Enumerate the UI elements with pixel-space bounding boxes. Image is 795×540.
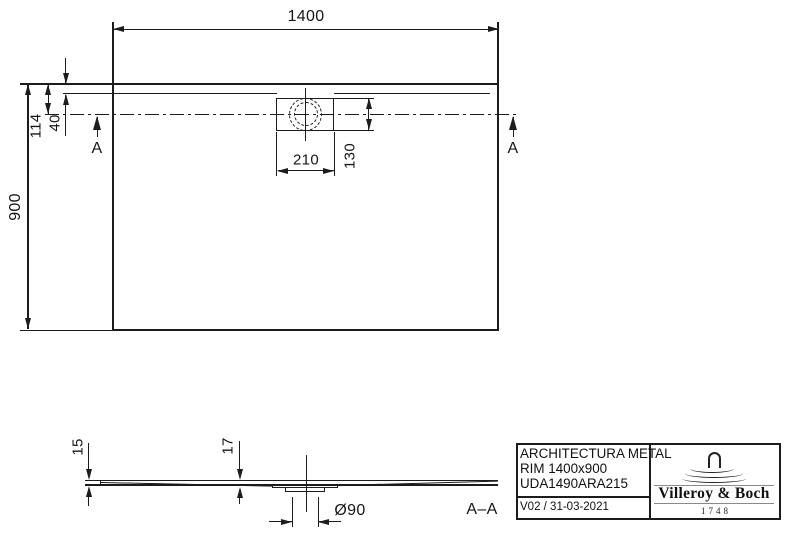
arrowhead-114-top <box>45 84 51 95</box>
dim-label-1400: 1400 <box>288 8 325 26</box>
product-code: UDA1490ARA215 <box>520 476 628 491</box>
arrowhead-17-bottom <box>237 487 243 498</box>
arrowhead-40-bottom <box>63 94 69 105</box>
arrowhead-130-bottom <box>366 119 372 130</box>
arrowhead-1400-right <box>488 26 499 32</box>
technical-drawing-sheet: 1400 900 114 40 A A 210 130 <box>0 0 795 540</box>
section-arrow-right-line <box>513 117 514 137</box>
dimension-line-15-lower <box>88 497 89 506</box>
dim-label-114: 114 <box>28 114 45 139</box>
arrowhead-130-top <box>366 98 372 109</box>
dimension-line-1400 <box>114 29 498 31</box>
section-marker-label-right: A <box>508 140 519 158</box>
arrowhead-114-bottom <box>45 103 51 114</box>
arrowhead-210-left <box>277 168 288 174</box>
rim-inner-edge-right <box>334 93 490 94</box>
dim-label-40: 40 <box>47 114 64 131</box>
section-top-surface <box>85 480 498 481</box>
brand-rule-bottom <box>654 503 774 504</box>
arrowhead-1400-left <box>113 26 124 32</box>
dim-label-900: 900 <box>7 193 25 221</box>
rim-inner-edge-left <box>63 93 277 94</box>
section-marker-label-left: A <box>92 140 103 158</box>
arrowhead-900-bottom <box>25 318 31 329</box>
dim-label-diameter-90: Ø90 <box>334 502 365 520</box>
arrowhead-40-top <box>63 73 69 84</box>
dimension-line-17-lower <box>239 498 240 504</box>
water-ripple-icon-3 <box>682 474 746 483</box>
dim-label-210: 210 <box>293 152 319 169</box>
section-drain-centerline <box>306 455 307 512</box>
revision-date: V02 / 31-03-2021 <box>520 501 609 513</box>
arrowhead-15-top <box>86 469 92 480</box>
dimension-line-17-upper <box>239 441 240 469</box>
arrowhead-15-bottom <box>86 486 92 497</box>
arrowhead-90-left <box>281 519 292 525</box>
dim-label-17: 17 <box>220 437 237 454</box>
product-model: RIM 1400x900 <box>520 461 607 476</box>
dim-label-130: 130 <box>342 143 359 169</box>
dim-label-15: 15 <box>70 438 87 455</box>
title-block-horizontal-divider <box>516 496 651 498</box>
arrowhead-900-top <box>25 84 31 95</box>
arrowhead-210-right <box>323 168 334 174</box>
drain-centerline-vertical <box>305 88 306 141</box>
product-series: ARCHITECTURA METAL <box>520 446 672 461</box>
brand-founded-year: 1748 <box>701 506 731 516</box>
arrowhead-17-top <box>237 469 243 480</box>
dimension-line-15-upper <box>88 443 89 469</box>
arrowhead-90-right <box>318 519 329 525</box>
brand-name: Villeroy & Boch <box>658 485 769 503</box>
section-title-label: A–A <box>466 501 497 519</box>
section-arrow-left-line <box>97 117 98 137</box>
extension-line-height-bottom <box>20 330 112 332</box>
